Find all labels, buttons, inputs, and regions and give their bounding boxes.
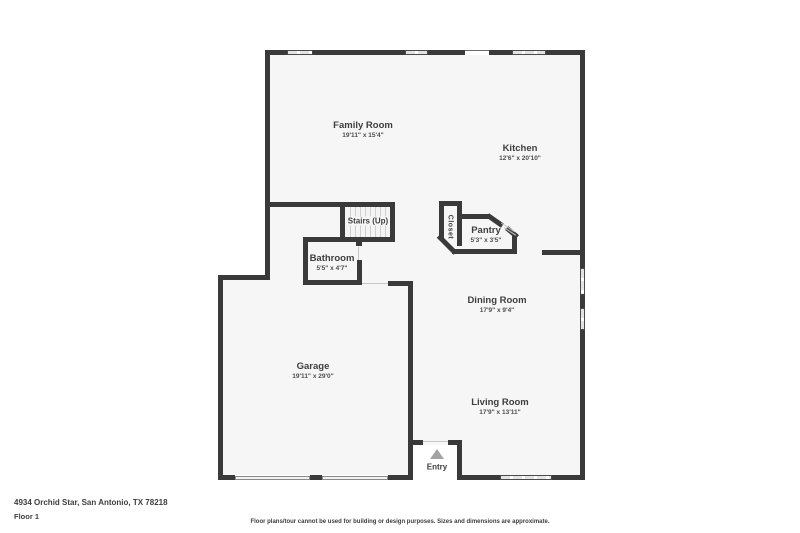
room-dimensions: 19'11" x 15'4" <box>333 131 393 140</box>
room-name: Living Room <box>471 397 529 408</box>
window <box>580 268 585 295</box>
room-label-kitchen: Kitchen12'6" x 20'10" <box>499 143 541 163</box>
room-dimensions: 5'3" x 3'5" <box>471 236 502 245</box>
wall-segment <box>580 330 585 480</box>
closet-label: Closet <box>447 215 454 239</box>
room-label-dining-room: Dining Room17'9" x 9'4" <box>467 295 526 315</box>
wall-segment <box>580 50 585 268</box>
room-name: Kitchen <box>499 143 541 154</box>
window <box>580 308 585 330</box>
room-name: Pantry <box>471 225 502 236</box>
wall-segment <box>457 475 500 480</box>
room-dimensions: 17'9" x 13'11" <box>471 408 529 417</box>
wall-segment <box>408 440 423 445</box>
room-name: Bathroom <box>310 253 355 264</box>
window <box>500 475 552 480</box>
opening-header-line <box>465 50 489 51</box>
wall-segment <box>452 249 517 254</box>
entry-label: Entry <box>427 463 447 472</box>
wall-segment <box>457 445 462 475</box>
wall-segment <box>457 206 462 246</box>
room-label-living-room: Living Room17'9" x 13'11" <box>471 397 529 417</box>
wall-segment <box>489 50 512 55</box>
interior-fill <box>270 55 580 280</box>
room-name: Family Room <box>333 120 393 131</box>
door-opening-line <box>358 247 359 260</box>
wall-segment <box>313 50 405 55</box>
room-label-bathroom: Bathroom5'5" x 4'7" <box>310 253 355 273</box>
disclaimer-text: Floor plans/tour cannot be used for buil… <box>0 519 800 525</box>
floorplan-drawing: Family Room19'11" x 15'4"Kitchen12'6" x … <box>0 0 800 533</box>
door-opening-line <box>362 283 388 284</box>
room-label-garage: Garage19'11" x 29'0" <box>292 361 333 381</box>
room-dimensions: 17'9" x 9'4" <box>467 306 526 315</box>
wall-segment <box>265 50 270 280</box>
wall-segment <box>303 280 362 285</box>
window <box>512 50 546 55</box>
wall-segment <box>408 286 413 480</box>
room-dimensions: 5'5" x 4'7" <box>310 264 355 273</box>
door-opening-line <box>423 441 448 442</box>
wall-segment <box>265 202 395 207</box>
wall-segment <box>462 214 489 219</box>
wall-segment <box>390 207 395 237</box>
garage-door <box>235 476 310 480</box>
wall-segment <box>552 475 585 480</box>
wall-segment <box>580 295 585 308</box>
wall-segment <box>428 50 465 55</box>
wall-segment <box>356 242 362 246</box>
room-name: Garage <box>292 361 333 372</box>
entry-arrow-icon <box>430 449 444 459</box>
wall-segment <box>303 237 395 242</box>
wall-segment <box>218 275 270 280</box>
window <box>287 50 313 55</box>
wall-segment <box>218 275 223 480</box>
wall-segment <box>388 475 413 480</box>
wall-segment <box>310 475 322 480</box>
room-name: Dining Room <box>467 295 526 306</box>
garage-door <box>322 476 388 480</box>
room-label-family-room: Family Room19'11" x 15'4" <box>333 120 393 140</box>
floorplan-image: Family Room19'11" x 15'4"Kitchen12'6" x … <box>0 0 800 533</box>
room-label-pantry: Pantry5'3" x 3'5" <box>471 225 502 245</box>
room-dimensions: 19'11" x 29'0" <box>292 372 333 381</box>
wall-segment <box>218 475 235 480</box>
wall-segment <box>542 250 585 255</box>
wall-segment <box>303 242 308 285</box>
property-address: 4934 Orchid Star, San Antonio, TX 78218 <box>14 498 168 507</box>
room-dimensions: 12'6" x 20'10" <box>499 154 541 163</box>
stairs-label: Stairs (Up) <box>346 217 390 226</box>
wall-segment <box>340 207 345 237</box>
window <box>405 50 428 55</box>
